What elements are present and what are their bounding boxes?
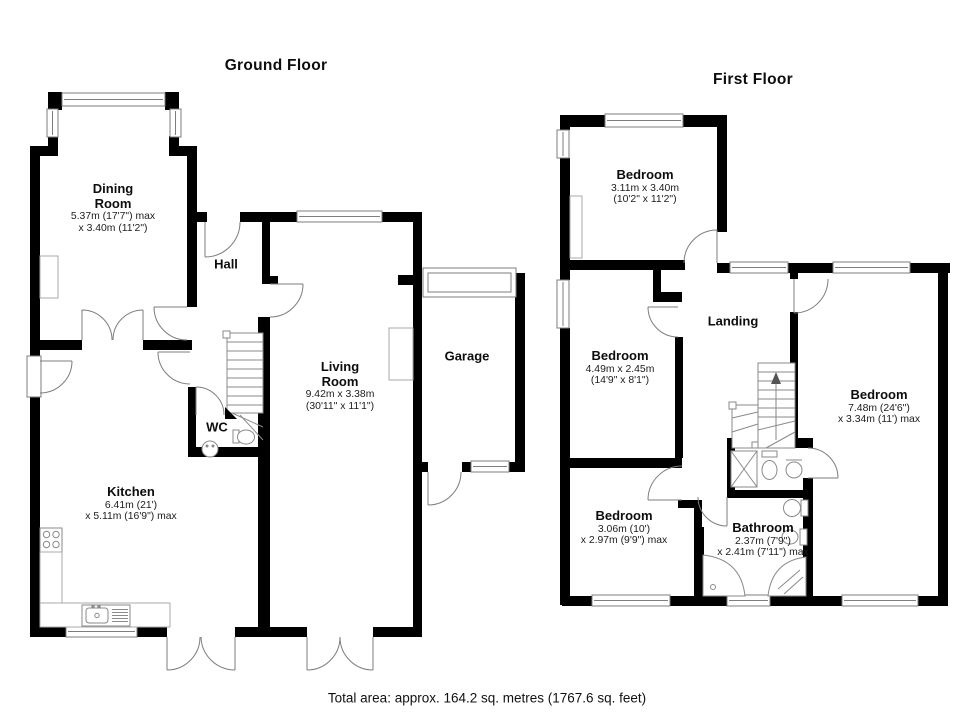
room-dims: (10'2" x 11'2") [611, 194, 679, 206]
ensuite-toilet-icon [762, 451, 777, 480]
first-floor-title: First Floor [713, 71, 793, 89]
room-label-garage: Garage [445, 350, 490, 365]
room-dims: 5.37m (17'7") max [71, 211, 155, 223]
bathroom-shower-icon [768, 557, 806, 596]
first-stairs [729, 363, 795, 448]
room-name: Landing [708, 315, 759, 330]
bedroom-wardrobe [570, 196, 582, 258]
wc-sink-icon [202, 441, 218, 457]
side-door-leaf [27, 356, 41, 397]
floorplan-page: Ground Floor First Floor Dining Room 5.3… [0, 0, 980, 712]
room-label-bathroom: Bathroom 2.37m (7'9") x 2.41m (7'11") ma… [717, 521, 809, 559]
room-label-dining: Dining Room 5.37m (17'7") max x 3.40m (1… [71, 182, 155, 234]
ensuite-sink-icon [786, 460, 802, 478]
room-name: Bedroom [581, 509, 668, 524]
room-dims: (14'9" x 8'1") [586, 375, 655, 387]
room-name: Living Room [304, 360, 376, 389]
room-name: Dining Room [77, 182, 149, 211]
room-dims: 2.37m (7'9") [717, 536, 809, 548]
room-dims: x 3.34m (11') max [838, 414, 920, 426]
total-area-text: Total area: approx. 164.2 sq. metres (17… [328, 691, 646, 706]
room-label-bedroom-back: Bedroom 3.06m (10') x 2.97m (9'9") max [581, 509, 668, 547]
room-name: Bathroom [717, 521, 809, 536]
room-dims: (30'11" x 11'1") [304, 401, 376, 413]
living-fireplace [389, 328, 413, 380]
room-dims: x 5.11m (16'9") max [85, 511, 177, 523]
room-dims: x 2.41m (7'11") max [717, 547, 809, 559]
room-name: Bedroom [586, 349, 655, 364]
ensuite-shower-icon [731, 451, 757, 487]
room-dims: x 2.97m (9'9") max [581, 535, 668, 547]
dining-cupboard [40, 256, 58, 298]
ground-floor-plan [27, 92, 525, 670]
kitchen-counter [40, 552, 62, 603]
room-dims: 3.11m x 3.40m [611, 183, 679, 195]
front-door-arc [205, 222, 240, 257]
room-dims: 3.06m (10') [581, 524, 668, 536]
room-name: Bedroom [838, 388, 920, 403]
bathroom-sink-icon [784, 500, 809, 517]
ground-stairs [223, 331, 263, 440]
room-name: Hall [214, 258, 238, 273]
room-name: Garage [445, 350, 490, 365]
room-label-hall: Hall [214, 258, 238, 273]
room-label-bedroom-middle: Bedroom 4.49m x 2.45m (14'9" x 8'1") [586, 349, 655, 387]
room-label-kitchen: Kitchen 6.41m (21') x 5.11m (16'9") max [85, 485, 177, 523]
room-dims: x 3.40m (11'2") [71, 223, 155, 235]
kitchen-sink-icon [82, 605, 130, 626]
room-label-bedroom-front: Bedroom 3.11m x 3.40m (10'2" x 11'2") [611, 168, 679, 206]
floorplan-drawing [0, 0, 980, 712]
room-name: WC [206, 421, 228, 436]
ground-fixtures [40, 256, 413, 627]
room-label-landing: Landing [708, 315, 759, 330]
room-label-wc: WC [206, 421, 228, 436]
ground-walls [30, 92, 525, 637]
bathroom-bath-icon [703, 555, 745, 596]
ground-floor-title: Ground Floor [225, 57, 328, 75]
room-dims: 6.41m (21') [85, 500, 177, 512]
ground-windows [27, 93, 516, 637]
room-name: Bedroom [611, 168, 679, 183]
room-name: Kitchen [85, 485, 177, 500]
kitchen-hob-icon [40, 528, 62, 552]
room-label-bedroom-main: Bedroom 7.48m (24'6") x 3.34m (11') max [838, 388, 920, 426]
room-dims: 9.42m x 3.38m [304, 389, 376, 401]
room-label-living: Living Room 9.42m x 3.38m (30'11" x 11'1… [304, 360, 376, 412]
room-dims: 4.49m x 2.45m [586, 364, 655, 376]
wc-toilet-icon [233, 430, 255, 444]
room-dims: 7.48m (24'6") [838, 403, 920, 415]
